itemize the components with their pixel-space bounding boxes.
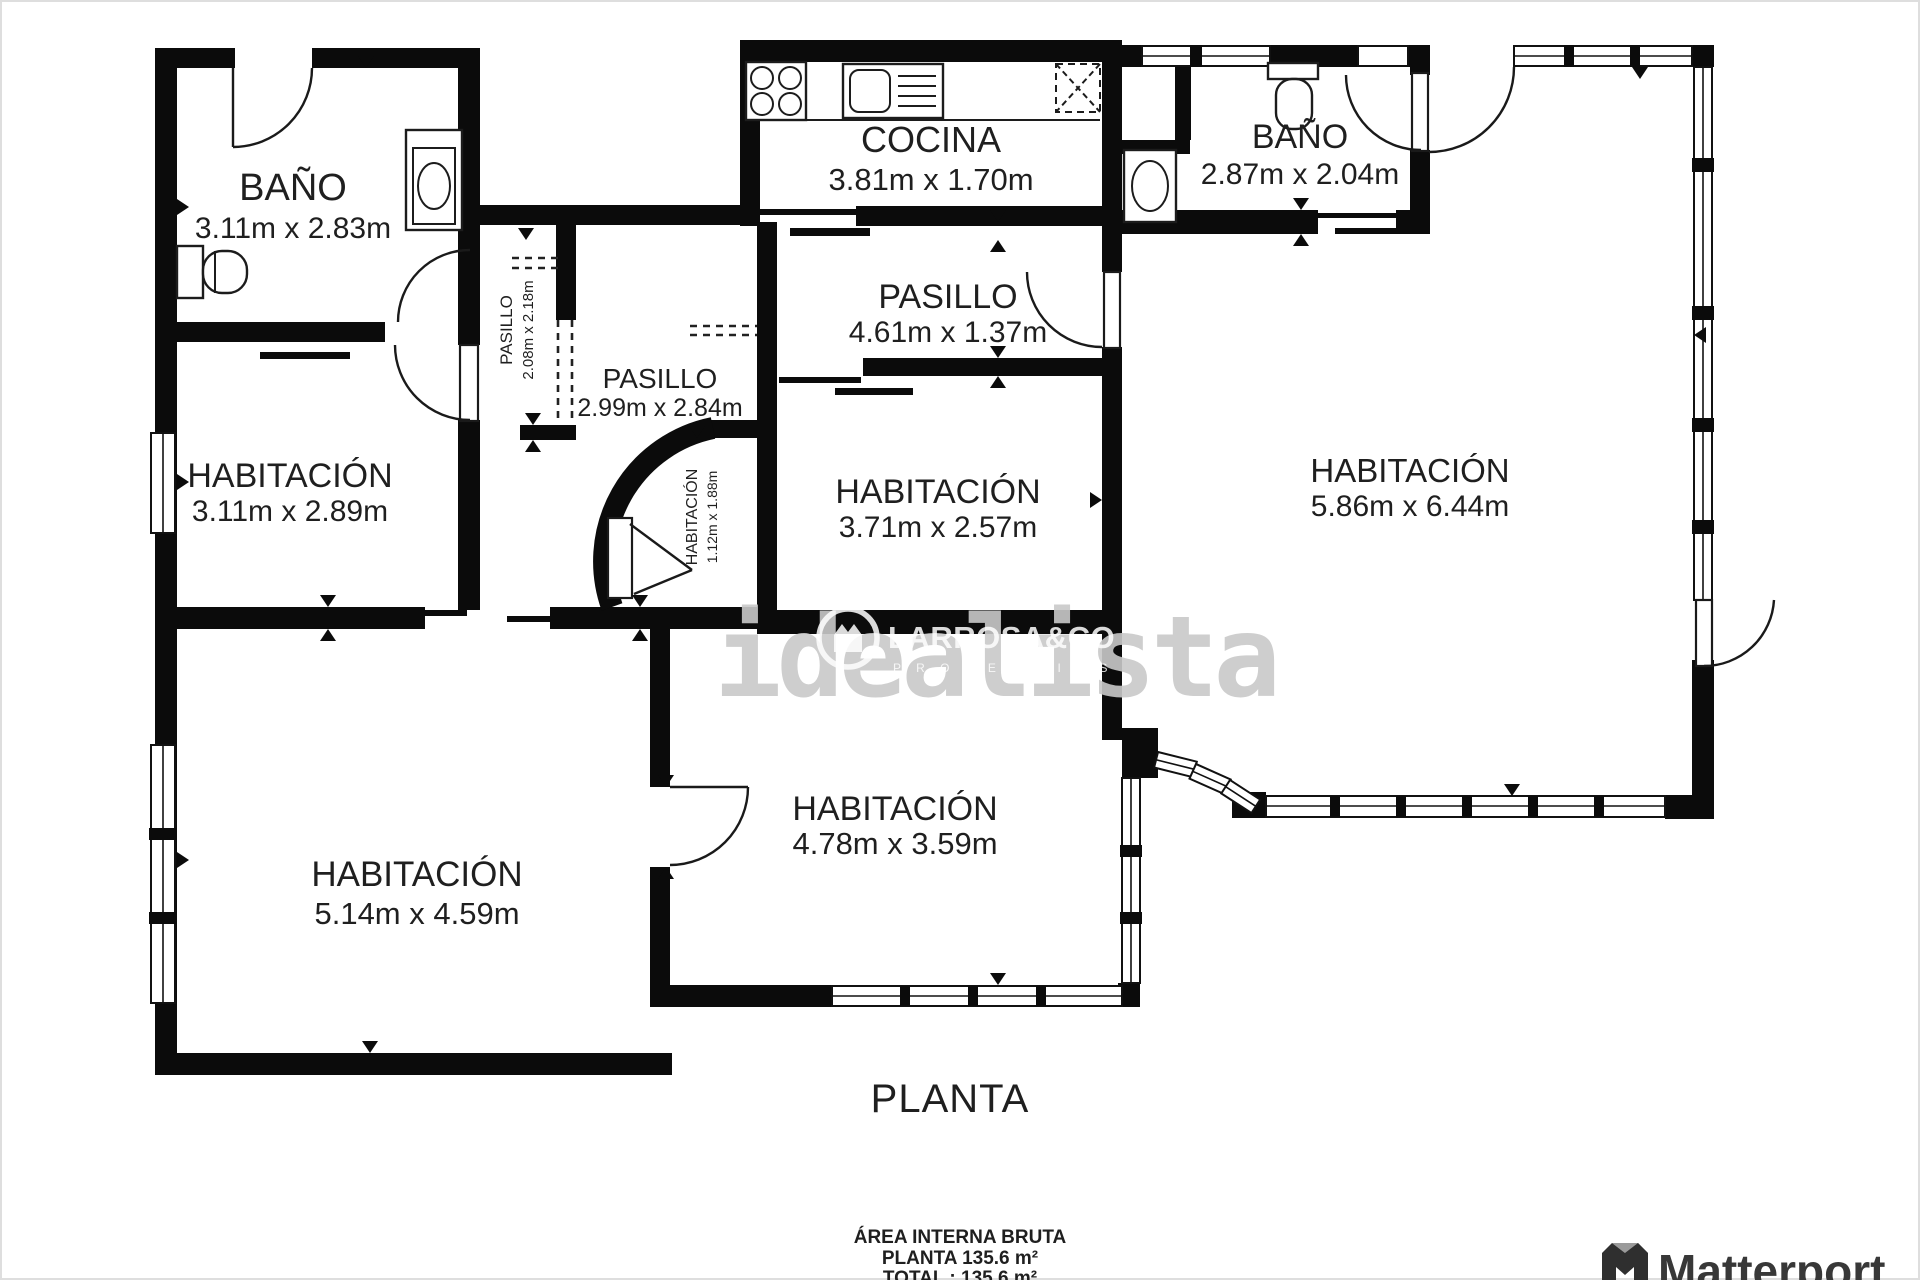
- door-arc-bano-tl-top: [233, 68, 312, 147]
- lintels: [260, 212, 1420, 622]
- label-cocina: COCINA: [861, 119, 1001, 160]
- label-hab-bottom-left: HABITACIÓN: [311, 855, 522, 894]
- dims-bano-tl: 3.11m x 2.83m: [195, 212, 391, 245]
- footer-area-line: ÁREA INTERNA BRUTA: [854, 1226, 1067, 1248]
- door-arc-hab-bottom-center: [670, 787, 748, 865]
- door-leaf-hab-left: [460, 345, 478, 421]
- watermark-brand-text: idealista: [714, 593, 1276, 723]
- door-arc-bano-tr: [1346, 75, 1421, 150]
- toilet-icon-bano-tl: [177, 246, 247, 298]
- door-leaf-hab-small: [630, 524, 692, 570]
- label-hab-bottom-center: HABITACIÓN: [792, 790, 997, 828]
- door-jamb-hab-small: [608, 518, 632, 598]
- matterport-branding: Matterport: [1602, 1243, 1885, 1280]
- sink-icon: [843, 64, 943, 118]
- door-leaf-exterior: [1696, 600, 1712, 666]
- door-leaf-pasillo: [1104, 272, 1120, 348]
- dims-hab-bottom-left: 5.14m x 4.59m: [314, 896, 519, 931]
- dims-pasillo-main: 4.61m x 1.37m: [849, 316, 1047, 349]
- door-arc-entrance: [1429, 67, 1514, 152]
- label-hab-small: HABITACIÓN: [682, 469, 701, 566]
- washer-icon-bano-tr: [1124, 150, 1176, 222]
- label-hab-right: HABITACIÓN: [1310, 452, 1509, 489]
- dims-hab-left: 3.11m x 2.89m: [192, 495, 388, 528]
- matterport-logo-icon: [1602, 1243, 1648, 1280]
- label-pasillo-2: PASILLO: [603, 363, 718, 394]
- label-bano-tr: BAÑO: [1252, 118, 1348, 156]
- floorplan-canvas: BAÑO 3.11m x 2.83m COCINA 3.81m x 1.70m …: [0, 0, 1920, 1280]
- plan-title: PLANTA: [871, 1077, 1030, 1121]
- dims-hab-bottom-center: 4.78m x 3.59m: [792, 826, 997, 861]
- dims-bano-tr: 2.87m x 2.04m: [1201, 158, 1399, 191]
- label-hab-left: HABITACIÓN: [187, 457, 392, 495]
- dims-hab-center: 3.71m x 2.57m: [839, 511, 1037, 544]
- washer-icon-bano-tl: [406, 130, 462, 230]
- dims-hab-small: 1.12m x 1.88m: [704, 471, 720, 564]
- door-arc-exterior: [1704, 600, 1774, 666]
- footer-planta-line: PLANTA 135.6 m²: [882, 1248, 1038, 1269]
- label-bano-tl: BAÑO: [239, 166, 347, 209]
- dims-pasillo-2: 2.99m x 2.84m: [577, 394, 742, 422]
- label-hab-center: HABITACIÓN: [835, 473, 1040, 511]
- label-pasillo-main: PASILLO: [878, 278, 1017, 316]
- label-pasillo-small: PASILLO: [497, 295, 516, 365]
- dims-cocina: 3.81m x 1.70m: [828, 162, 1033, 197]
- dims-pasillo-small: 2.08m x 2.18m: [520, 280, 537, 379]
- agency-sub-text: P R O P E R T I E S: [893, 661, 1114, 675]
- agency-name-text: LARROSA&CO: [888, 620, 1115, 655]
- stove-icon: [746, 62, 806, 120]
- matterport-wordmark: Matterport: [1658, 1245, 1885, 1280]
- dims-hab-right: 5.86m x 6.44m: [1311, 490, 1509, 523]
- door-leaf-bano-tr: [1412, 73, 1428, 151]
- footer-total-line: TOTAL : 135.6 m²: [883, 1268, 1037, 1280]
- door-arc-hab-left: [395, 345, 470, 420]
- appliance-dashed-icon: [1056, 64, 1100, 112]
- watermark-idealista: idealista: [714, 593, 1276, 723]
- plan-captions: PLANTA ÁREA INTERNA BRUTA PLANTA 135.6 m…: [854, 1077, 1067, 1280]
